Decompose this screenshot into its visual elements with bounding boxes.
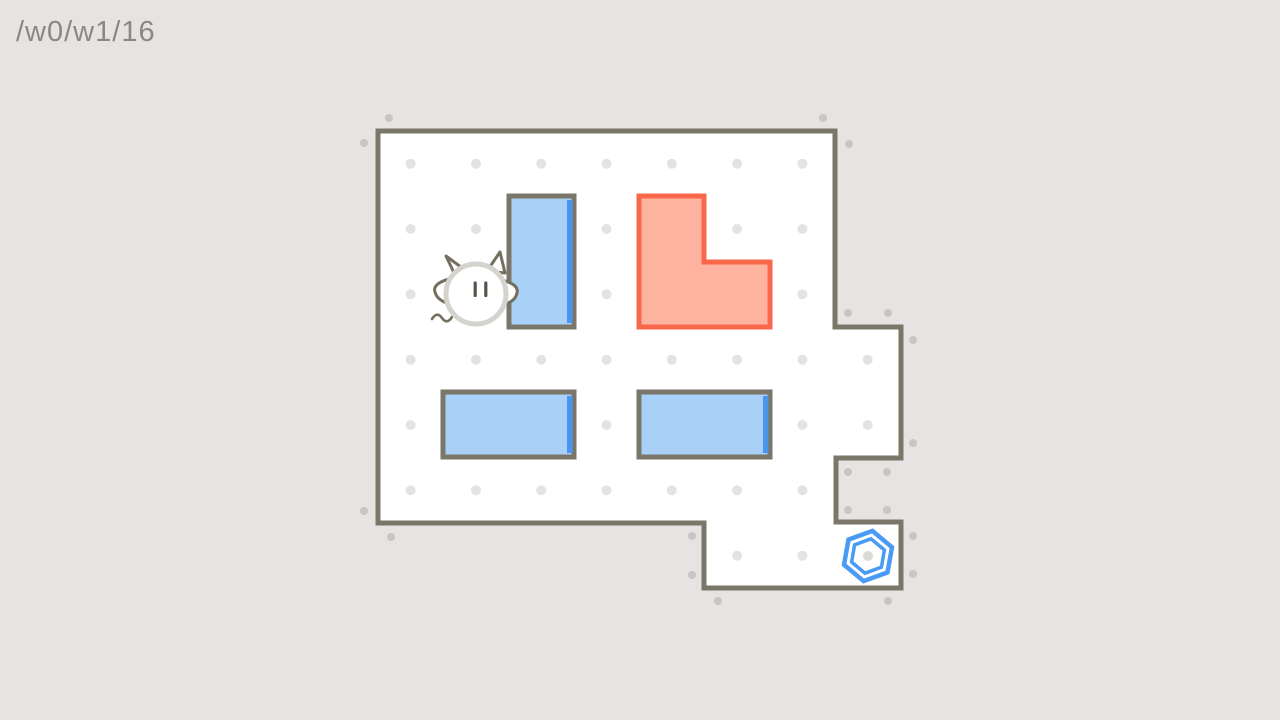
grid-dot [406,420,416,430]
box-body [639,392,770,457]
grid-dot [406,159,416,169]
box-body [443,392,574,457]
box-edge-highlight [567,200,573,323]
grid-dot [602,355,612,365]
grid-dot [797,485,807,495]
grid-dot [471,485,481,495]
grid-dot [406,224,416,234]
grid-dot [884,597,892,605]
grid-dot [884,309,892,317]
grid-dot [797,159,807,169]
grid-dot [844,468,852,476]
grid-dot [406,289,416,299]
grid-dot [844,309,852,317]
wide-blue-box-right [639,392,770,457]
grid-dot [863,355,873,365]
grid-dot [406,485,416,495]
grid-dot [536,485,546,495]
grid-dot [732,551,742,561]
grid-dot [714,597,722,605]
grid-dot [387,533,395,541]
grid-dot [845,140,853,148]
grid-dot [536,159,546,169]
grid-dot [909,570,917,578]
box-body [509,196,574,327]
grid-dot [797,224,807,234]
grid-dot [667,355,677,365]
grid-dot [602,289,612,299]
grid-dot [667,485,677,495]
game-viewport[interactable]: /w0/w1/16 [0,0,1280,720]
grid-dot [385,114,393,122]
game-canvas [0,0,1280,720]
grid-dot [536,355,546,365]
grid-dot [883,506,891,514]
grid-dot [909,336,917,344]
box-edge-highlight [567,396,573,453]
grid-dot [471,355,481,365]
grid-dot [863,420,873,430]
grid-dot [667,159,677,169]
grid-dot [732,485,742,495]
goal-center-dot [863,551,873,561]
grid-dot [732,159,742,169]
grid-dot [797,420,807,430]
grid-dot [406,355,416,365]
grid-dot [471,159,481,169]
grid-dot [602,224,612,234]
grid-dot [844,506,852,514]
grid-dot [471,224,481,234]
grid-dot [819,114,827,122]
grid-dot [797,289,807,299]
grid-dot [602,485,612,495]
box-edge-highlight [763,396,769,453]
grid-dot [602,159,612,169]
grid-dot [883,468,891,476]
wide-blue-box-left [443,392,574,457]
grid-dot [360,507,368,515]
grid-dot [909,439,917,447]
grid-dot [688,532,696,540]
grid-dot [797,551,807,561]
grid-dot [732,355,742,365]
goal-marker [844,531,892,581]
grid-dot [732,224,742,234]
grid-dot [797,355,807,365]
grid-dot [360,139,368,147]
grid-dot [688,571,696,579]
grid-dot [602,420,612,430]
tall-blue-box [509,196,574,327]
grid-dot [909,532,917,540]
